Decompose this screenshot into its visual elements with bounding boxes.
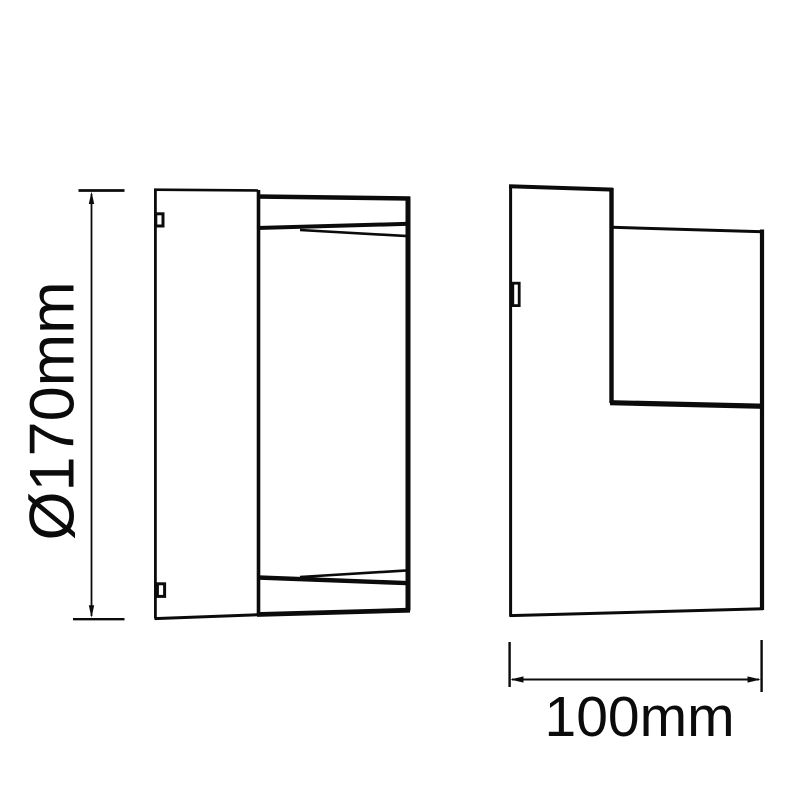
svg-text:Ø170mm: Ø170mm: [18, 281, 88, 540]
svg-text:100mm: 100mm: [545, 685, 735, 749]
